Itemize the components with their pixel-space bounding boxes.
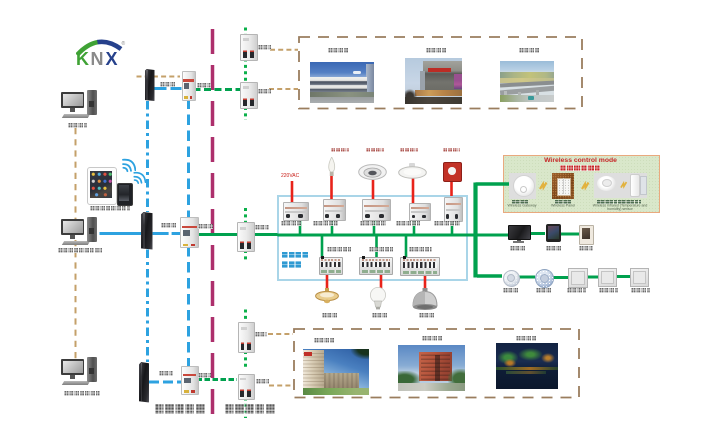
svg-text:X: X bbox=[106, 49, 118, 66]
svg-text:K: K bbox=[76, 49, 89, 66]
svg-text:®: ® bbox=[122, 40, 126, 47]
svg-text:N: N bbox=[91, 49, 104, 66]
